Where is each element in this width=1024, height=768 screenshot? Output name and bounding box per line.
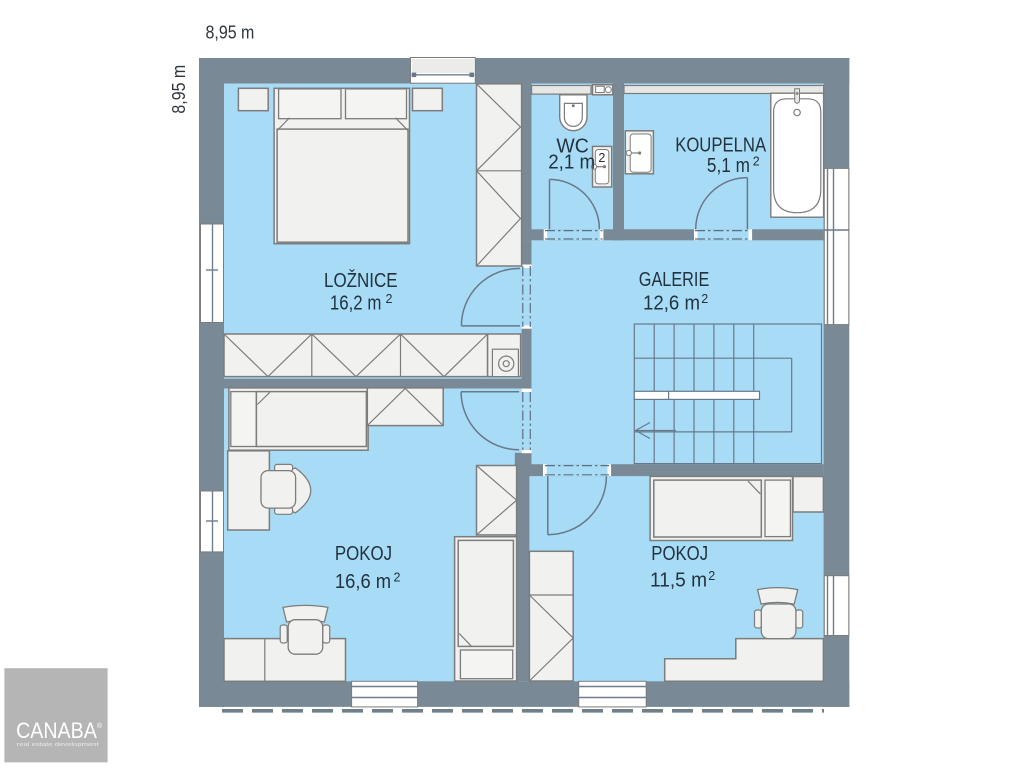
svg-text:POKOJ: POKOJ <box>335 543 392 565</box>
svg-text:2: 2 <box>708 569 715 583</box>
svg-text:16,2 m: 16,2 m <box>330 292 382 314</box>
svg-text:LOŽNICE: LOŽNICE <box>324 269 398 292</box>
svg-text:KOUPELNA: KOUPELNA <box>675 134 766 156</box>
svg-text:2: 2 <box>701 292 708 306</box>
svg-text:CANABA: CANABA <box>16 718 97 743</box>
svg-text:2: 2 <box>598 151 605 165</box>
svg-text:16,6 m: 16,6 m <box>335 571 391 593</box>
svg-text:GALERIE: GALERIE <box>639 269 710 291</box>
svg-text:2,1 m: 2,1 m <box>548 151 595 173</box>
svg-text:11,5 m: 11,5 m <box>650 570 707 592</box>
svg-text:2: 2 <box>386 292 393 306</box>
svg-text:®: ® <box>97 722 103 730</box>
svg-text:8,95 m: 8,95 m <box>206 21 255 42</box>
svg-text:5,1 m: 5,1 m <box>707 155 750 177</box>
svg-text:8,95 m: 8,95 m <box>168 65 189 114</box>
svg-text:real estate development: real estate development <box>17 742 100 748</box>
svg-text:2: 2 <box>753 155 760 169</box>
svg-text:POKOJ: POKOJ <box>651 543 708 565</box>
svg-text:2: 2 <box>394 571 401 585</box>
svg-text:12,6 m: 12,6 m <box>643 292 700 314</box>
